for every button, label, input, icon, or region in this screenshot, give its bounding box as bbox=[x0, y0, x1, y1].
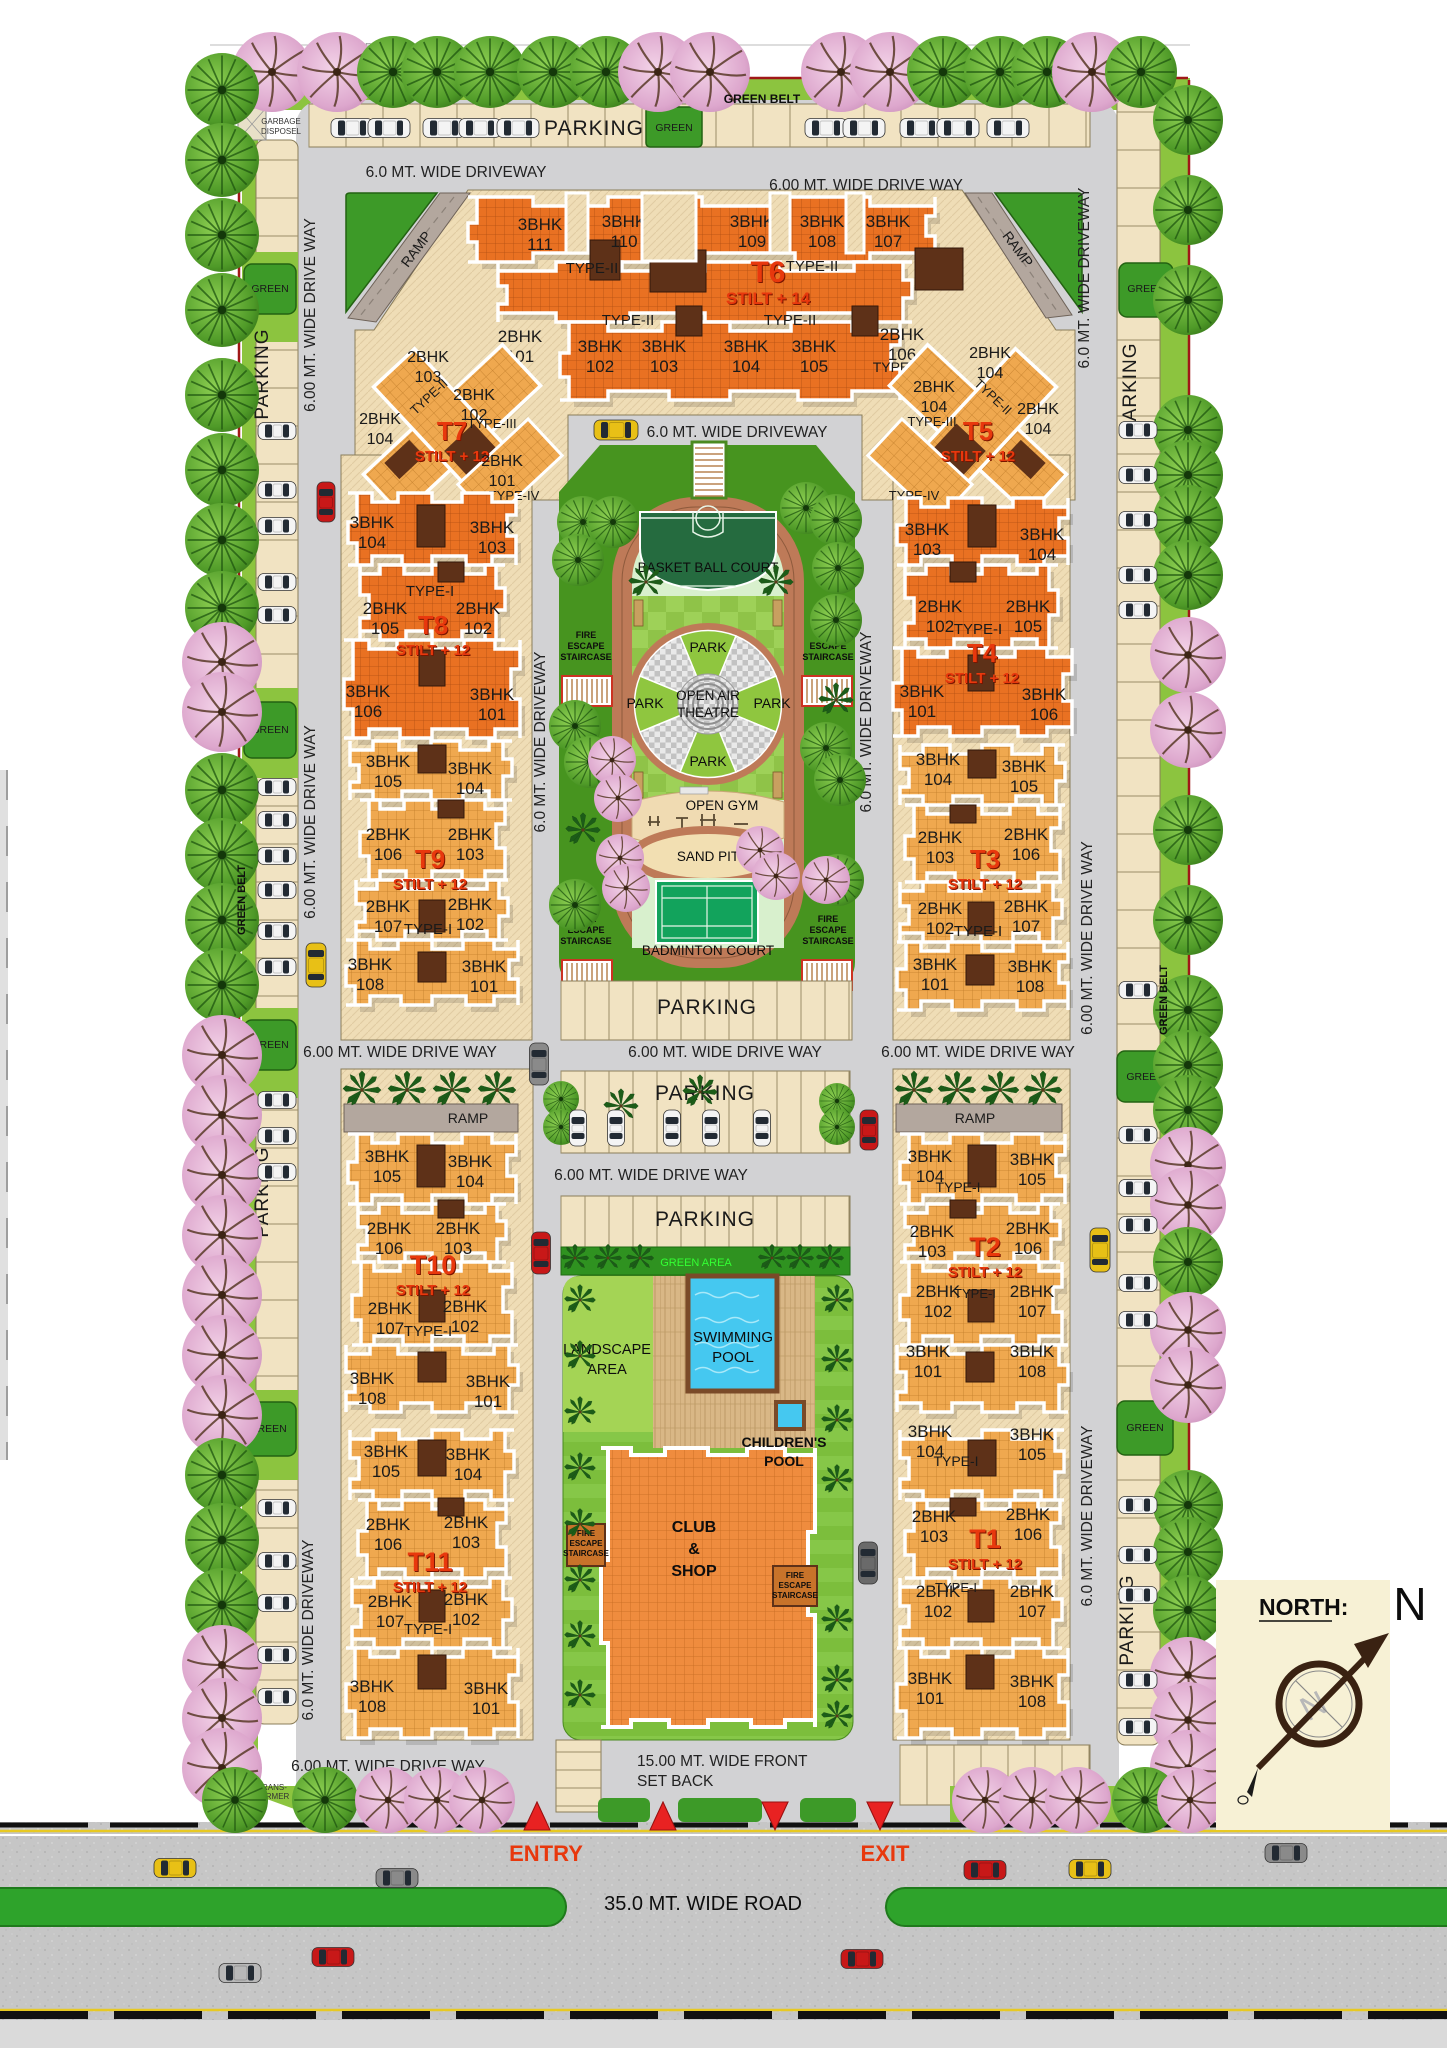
svg-text:104: 104 bbox=[456, 779, 484, 798]
svg-text:6.00 MT. WIDE DRIVE WAY: 6.00 MT. WIDE DRIVE WAY bbox=[302, 725, 319, 919]
svg-text:104: 104 bbox=[358, 533, 386, 552]
svg-text:NORTH:: NORTH: bbox=[1259, 1594, 1348, 1620]
svg-text:STILT + 12: STILT + 12 bbox=[948, 1556, 1022, 1573]
svg-text:T1: T1 bbox=[969, 1524, 1001, 1554]
svg-text:3BHK: 3BHK bbox=[730, 212, 775, 231]
svg-text:GREEN: GREEN bbox=[1126, 1422, 1163, 1434]
svg-text:105: 105 bbox=[372, 1462, 400, 1481]
svg-text:2BHK: 2BHK bbox=[366, 1515, 411, 1534]
svg-text:2BHK: 2BHK bbox=[448, 825, 493, 844]
svg-text:2BHK: 2BHK bbox=[1004, 897, 1049, 916]
svg-text:PARK: PARK bbox=[689, 753, 727, 769]
svg-text:2BHK: 2BHK bbox=[444, 1590, 489, 1609]
svg-text:TYPE-III: TYPE-III bbox=[467, 416, 516, 431]
svg-text:3BHK: 3BHK bbox=[348, 955, 393, 974]
svg-text:&: & bbox=[688, 1541, 700, 1558]
svg-text:3BHK: 3BHK bbox=[346, 682, 391, 701]
svg-text:106: 106 bbox=[1030, 705, 1058, 724]
svg-text:102: 102 bbox=[451, 1317, 479, 1336]
svg-text:STILT + 12: STILT + 12 bbox=[415, 448, 489, 465]
svg-text:2BHK: 2BHK bbox=[918, 828, 963, 847]
svg-text:2BHK: 2BHK bbox=[407, 349, 449, 366]
svg-text:102: 102 bbox=[456, 915, 484, 934]
svg-text:3BHK: 3BHK bbox=[1008, 957, 1053, 976]
svg-text:6.0 MT. WIDE DRIVEWAY: 6.0 MT. WIDE DRIVEWAY bbox=[366, 164, 547, 181]
svg-text:PARKING: PARKING bbox=[657, 996, 757, 1019]
svg-text:104: 104 bbox=[456, 1172, 484, 1191]
svg-text:PARKING: PARKING bbox=[544, 117, 644, 140]
svg-text:104: 104 bbox=[732, 357, 760, 376]
svg-text:TYPE-I: TYPE-I bbox=[954, 923, 1002, 940]
svg-text:102: 102 bbox=[926, 617, 954, 636]
svg-text:103: 103 bbox=[452, 1533, 480, 1552]
svg-text:108: 108 bbox=[808, 232, 836, 251]
svg-text:104: 104 bbox=[924, 770, 952, 789]
svg-text:101: 101 bbox=[478, 705, 506, 724]
svg-text:15.00 MT. WIDE FRONT: 15.00 MT. WIDE FRONT bbox=[637, 1753, 808, 1770]
svg-text:3BHK: 3BHK bbox=[866, 212, 911, 231]
svg-text:101: 101 bbox=[916, 1689, 944, 1708]
svg-text:2BHK: 2BHK bbox=[453, 387, 495, 404]
svg-text:2BHK: 2BHK bbox=[918, 899, 963, 918]
svg-text:102: 102 bbox=[586, 357, 614, 376]
svg-text:T6: T6 bbox=[750, 256, 785, 289]
svg-text:101: 101 bbox=[470, 977, 498, 996]
svg-text:2BHK: 2BHK bbox=[443, 1297, 488, 1316]
svg-text:FIRE: FIRE bbox=[576, 630, 597, 640]
svg-text:105: 105 bbox=[371, 619, 399, 638]
svg-text:3BHK: 3BHK bbox=[916, 750, 961, 769]
svg-text:T11: T11 bbox=[407, 1547, 452, 1577]
svg-text:3BHK: 3BHK bbox=[366, 752, 411, 771]
svg-text:105: 105 bbox=[373, 1167, 401, 1186]
svg-text:T2: T2 bbox=[969, 1232, 1001, 1262]
svg-text:3BHK: 3BHK bbox=[446, 1445, 491, 1464]
svg-text:106: 106 bbox=[374, 845, 402, 864]
svg-text:101: 101 bbox=[914, 1362, 942, 1381]
svg-text:103: 103 bbox=[478, 538, 506, 557]
svg-text:T4: T4 bbox=[967, 638, 998, 668]
svg-text:ESCAPE: ESCAPE bbox=[570, 1539, 604, 1548]
svg-text:3BHK: 3BHK bbox=[1002, 757, 1047, 776]
svg-text:TYPE-III: TYPE-III bbox=[907, 414, 956, 429]
svg-text:102: 102 bbox=[926, 919, 954, 938]
svg-text:3BHK: 3BHK bbox=[905, 520, 950, 539]
svg-text:103: 103 bbox=[926, 848, 954, 867]
svg-text:GARBAGE: GARBAGE bbox=[261, 117, 301, 126]
svg-text:6.00 MT. WIDE DRIVE WAY: 6.00 MT. WIDE DRIVE WAY bbox=[302, 218, 319, 412]
svg-text:SET BACK: SET BACK bbox=[637, 1773, 714, 1790]
svg-text:2BHK: 2BHK bbox=[368, 1299, 413, 1318]
svg-text:6.0 MT. WIDE DRIVEWAY: 6.0 MT. WIDE DRIVEWAY bbox=[1079, 1426, 1096, 1607]
svg-text:CLUB: CLUB bbox=[672, 1519, 716, 1536]
svg-text:2BHK: 2BHK bbox=[444, 1513, 489, 1532]
svg-text:111: 111 bbox=[527, 235, 553, 254]
svg-text:STAIRCASE: STAIRCASE bbox=[802, 652, 853, 662]
svg-text:T10: T10 bbox=[410, 1250, 457, 1280]
svg-text:101: 101 bbox=[908, 702, 936, 721]
svg-text:6.0 MT. WIDE DRIVEWAY: 6.0 MT. WIDE DRIVEWAY bbox=[647, 424, 828, 441]
svg-text:2BHK: 2BHK bbox=[367, 1219, 412, 1238]
svg-text:2BHK: 2BHK bbox=[366, 825, 411, 844]
svg-text:3BHK: 3BHK bbox=[578, 337, 623, 356]
svg-text:3BHK: 3BHK bbox=[642, 337, 687, 356]
svg-text:STAIRCASE: STAIRCASE bbox=[563, 1549, 609, 1558]
svg-text:108: 108 bbox=[1018, 1692, 1046, 1711]
svg-text:3BHK: 3BHK bbox=[602, 212, 647, 231]
svg-text:STILT + 12: STILT + 12 bbox=[945, 670, 1019, 687]
svg-text:T5: T5 bbox=[963, 416, 993, 446]
svg-text:2BHK: 2BHK bbox=[363, 599, 408, 618]
svg-text:108: 108 bbox=[1016, 977, 1044, 996]
svg-text:105: 105 bbox=[800, 357, 828, 376]
svg-text:STILT + 14: STILT + 14 bbox=[726, 289, 811, 308]
svg-text:105: 105 bbox=[1018, 1170, 1046, 1189]
svg-text:106: 106 bbox=[374, 1535, 402, 1554]
svg-text:103: 103 bbox=[913, 540, 941, 559]
svg-text:105: 105 bbox=[1010, 777, 1038, 796]
svg-text:POOL: POOL bbox=[712, 1349, 754, 1366]
svg-text:103: 103 bbox=[918, 1242, 946, 1261]
svg-text:3BHK: 3BHK bbox=[470, 685, 515, 704]
svg-text:6.0 MT. WIDE DRIVEWAY: 6.0 MT. WIDE DRIVEWAY bbox=[532, 652, 549, 833]
svg-text:TYPE-II: TYPE-II bbox=[602, 312, 655, 329]
svg-text:109: 109 bbox=[738, 232, 766, 251]
svg-text:GREEN BELT: GREEN BELT bbox=[236, 865, 248, 935]
svg-text:107: 107 bbox=[874, 232, 902, 251]
svg-text:105: 105 bbox=[1018, 1445, 1046, 1464]
svg-text:STILT + 12: STILT + 12 bbox=[396, 642, 470, 659]
svg-text:FIRE: FIRE bbox=[786, 1571, 805, 1580]
svg-text:101: 101 bbox=[474, 1392, 502, 1411]
svg-text:TYPE-I: TYPE-I bbox=[933, 1453, 978, 1469]
svg-text:2BHK: 2BHK bbox=[918, 597, 963, 616]
svg-text:3BHK: 3BHK bbox=[350, 1369, 395, 1388]
svg-text:PARKING: PARKING bbox=[655, 1208, 755, 1231]
svg-text:3BHK: 3BHK bbox=[913, 955, 958, 974]
svg-text:104: 104 bbox=[1028, 545, 1056, 564]
svg-text:GREEN BELT: GREEN BELT bbox=[1158, 965, 1170, 1035]
svg-text:TYPE-I: TYPE-I bbox=[406, 583, 454, 600]
svg-text:DISPOSEL: DISPOSEL bbox=[261, 127, 302, 136]
svg-text:THEATRE: THEATRE bbox=[677, 705, 739, 720]
svg-text:3BHK: 3BHK bbox=[518, 215, 563, 234]
svg-text:FIRE: FIRE bbox=[818, 914, 839, 924]
svg-text:105: 105 bbox=[1014, 617, 1042, 636]
svg-text:3BHK: 3BHK bbox=[800, 212, 845, 231]
svg-text:3BHK: 3BHK bbox=[908, 1147, 953, 1166]
svg-text:PARKING: PARKING bbox=[1120, 342, 1141, 433]
svg-text:3BHK: 3BHK bbox=[448, 759, 493, 778]
svg-text:GREEN BELT: GREEN BELT bbox=[724, 92, 801, 106]
svg-text:102: 102 bbox=[924, 1302, 952, 1321]
svg-text:3BHK: 3BHK bbox=[350, 1677, 395, 1696]
svg-text:104: 104 bbox=[1025, 421, 1052, 438]
svg-text:STILT + 12: STILT + 12 bbox=[393, 876, 467, 893]
svg-text:2BHK: 2BHK bbox=[436, 1219, 481, 1238]
svg-text:TYPE-I: TYPE-I bbox=[404, 1621, 452, 1638]
svg-text:STAIRCASE: STAIRCASE bbox=[772, 1591, 818, 1600]
svg-text:103: 103 bbox=[920, 1527, 948, 1546]
svg-text:3BHK: 3BHK bbox=[1020, 525, 1065, 544]
svg-text:3BHK: 3BHK bbox=[1022, 685, 1067, 704]
svg-text:RAMP: RAMP bbox=[448, 1110, 488, 1126]
svg-text:2BHK: 2BHK bbox=[1006, 1505, 1051, 1524]
svg-text:AREA: AREA bbox=[587, 1362, 627, 1378]
svg-text:2BHK: 2BHK bbox=[456, 599, 501, 618]
svg-text:3BHK: 3BHK bbox=[466, 1372, 511, 1391]
svg-text:TYPE-I: TYPE-I bbox=[404, 1323, 452, 1340]
svg-text:102: 102 bbox=[924, 1602, 952, 1621]
svg-text:103: 103 bbox=[456, 845, 484, 864]
svg-text:6.0 MT. WIDE DRIVEWAY: 6.0 MT. WIDE DRIVEWAY bbox=[1076, 188, 1093, 369]
svg-text:ENTRY: ENTRY bbox=[509, 1841, 583, 1866]
svg-text:STILT + 12: STILT + 12 bbox=[948, 876, 1022, 893]
svg-text:PARK: PARK bbox=[626, 695, 664, 711]
svg-text:ESCAPE: ESCAPE bbox=[567, 641, 604, 651]
svg-text:108: 108 bbox=[1018, 1362, 1046, 1381]
svg-text:3BHK: 3BHK bbox=[724, 337, 769, 356]
svg-text:6.00 MT. WIDE DRIVE WAY: 6.00 MT. WIDE DRIVE WAY bbox=[769, 177, 963, 194]
svg-text:2BHK: 2BHK bbox=[368, 1592, 413, 1611]
svg-text:2BHK: 2BHK bbox=[498, 327, 543, 346]
svg-text:6.00 MT. WIDE DRIVE WAY: 6.00 MT. WIDE DRIVE WAY bbox=[1079, 841, 1096, 1035]
svg-text:2BHK: 2BHK bbox=[1017, 401, 1059, 418]
svg-text:TYPE-I: TYPE-I bbox=[935, 1179, 980, 1195]
svg-text:T3: T3 bbox=[970, 844, 1000, 874]
svg-text:STILT + 12: STILT + 12 bbox=[948, 1264, 1022, 1281]
svg-text:2BHK: 2BHK bbox=[880, 325, 925, 344]
svg-text:2BHK: 2BHK bbox=[366, 897, 411, 916]
svg-text:6.00 MT. WIDE DRIVE WAY: 6.00 MT. WIDE DRIVE WAY bbox=[881, 1044, 1075, 1061]
svg-text:STAIRCASE: STAIRCASE bbox=[560, 652, 611, 662]
svg-text:3BHK: 3BHK bbox=[1010, 1672, 1055, 1691]
svg-text:2BHK: 2BHK bbox=[1010, 1582, 1055, 1601]
svg-text:2BHK: 2BHK bbox=[448, 895, 493, 914]
svg-text:3BHK: 3BHK bbox=[1010, 1425, 1055, 1444]
svg-text:BADMINTON COURT: BADMINTON COURT bbox=[642, 943, 774, 958]
svg-text:N: N bbox=[1393, 1578, 1426, 1630]
svg-text:2BHK: 2BHK bbox=[1004, 825, 1049, 844]
svg-text:35.0 MT. WIDE ROAD: 35.0 MT. WIDE ROAD bbox=[604, 1893, 802, 1915]
svg-text:108: 108 bbox=[356, 975, 384, 994]
svg-text:3BHK: 3BHK bbox=[1010, 1342, 1055, 1361]
svg-text:TYPE-II: TYPE-II bbox=[786, 258, 839, 275]
svg-text:OPEN GYM: OPEN GYM bbox=[686, 798, 759, 813]
svg-text:107: 107 bbox=[1018, 1302, 1046, 1321]
svg-text:105: 105 bbox=[374, 772, 402, 791]
svg-text:TYPE-I: TYPE-I bbox=[954, 621, 1002, 638]
svg-text:2BHK: 2BHK bbox=[1010, 1282, 1055, 1301]
svg-text:6.00 MT. WIDE DRIVE WAY: 6.00 MT. WIDE DRIVE WAY bbox=[628, 1044, 822, 1061]
svg-text:SAND PIT: SAND PIT bbox=[677, 849, 739, 864]
svg-text:106: 106 bbox=[354, 702, 382, 721]
svg-text:3BHK: 3BHK bbox=[908, 1422, 953, 1441]
svg-text:107: 107 bbox=[1012, 917, 1040, 936]
svg-text:3BHK: 3BHK bbox=[470, 518, 515, 537]
svg-text:101: 101 bbox=[921, 975, 949, 994]
svg-text:TYPE-II: TYPE-II bbox=[764, 312, 817, 329]
svg-text:BASKET BALL COURT: BASKET BALL COURT bbox=[638, 560, 779, 575]
svg-text:STAIRCASE: STAIRCASE bbox=[802, 936, 853, 946]
svg-text:GREEN AREA: GREEN AREA bbox=[660, 1257, 732, 1269]
svg-text:T9: T9 bbox=[415, 844, 445, 874]
svg-text:6.00 MT. WIDE DRIVE WAY: 6.00 MT. WIDE DRIVE WAY bbox=[554, 1167, 748, 1184]
svg-text:POOL: POOL bbox=[764, 1453, 804, 1469]
svg-text:3BHK: 3BHK bbox=[1010, 1150, 1055, 1169]
svg-text:2BHK: 2BHK bbox=[1006, 1219, 1051, 1238]
svg-text:3BHK: 3BHK bbox=[464, 1679, 509, 1698]
svg-text:CHILDREN'S: CHILDREN'S bbox=[742, 1434, 827, 1450]
svg-text:108: 108 bbox=[358, 1697, 386, 1716]
svg-text:106: 106 bbox=[1012, 845, 1040, 864]
svg-text:6.00 MT. WIDE DRIVE WAY: 6.00 MT. WIDE DRIVE WAY bbox=[303, 1044, 497, 1061]
svg-text:2BHK: 2BHK bbox=[969, 345, 1011, 362]
svg-text:107: 107 bbox=[374, 917, 402, 936]
svg-text:3BHK: 3BHK bbox=[792, 337, 837, 356]
svg-text:TYPE-II: TYPE-II bbox=[566, 260, 619, 277]
svg-text:OPEN AIR: OPEN AIR bbox=[676, 688, 740, 703]
svg-text:GREEN: GREEN bbox=[655, 122, 692, 134]
svg-text:104: 104 bbox=[454, 1465, 482, 1484]
svg-text:2BHK: 2BHK bbox=[1006, 597, 1051, 616]
svg-text:3BHK: 3BHK bbox=[350, 513, 395, 532]
svg-text:SHOP: SHOP bbox=[671, 1563, 717, 1580]
svg-text:102: 102 bbox=[452, 1610, 480, 1629]
svg-text:106: 106 bbox=[375, 1239, 403, 1258]
svg-text:3BHK: 3BHK bbox=[908, 1669, 953, 1688]
svg-text:3BHK: 3BHK bbox=[462, 957, 507, 976]
svg-text:PARK: PARK bbox=[689, 639, 727, 655]
svg-text:3BHK: 3BHK bbox=[906, 1342, 951, 1361]
svg-text:3BHK: 3BHK bbox=[448, 1152, 493, 1171]
svg-text:108: 108 bbox=[358, 1389, 386, 1408]
svg-text:3BHK: 3BHK bbox=[365, 1147, 410, 1166]
svg-text:GREEN: GREEN bbox=[251, 283, 288, 295]
svg-text:3BHK: 3BHK bbox=[364, 1442, 409, 1461]
svg-text:101: 101 bbox=[472, 1699, 500, 1718]
svg-text:STILT + 12: STILT + 12 bbox=[941, 448, 1015, 465]
svg-text:2BHK: 2BHK bbox=[912, 1507, 957, 1526]
svg-text:PARK: PARK bbox=[753, 695, 791, 711]
svg-text:ESCAPE: ESCAPE bbox=[809, 925, 846, 935]
svg-text:T8: T8 bbox=[418, 610, 448, 640]
svg-text:2BHK: 2BHK bbox=[913, 379, 955, 396]
svg-text:ESCAPE: ESCAPE bbox=[779, 1581, 813, 1590]
svg-text:3BHK: 3BHK bbox=[900, 682, 945, 701]
svg-text:STAIRCASE: STAIRCASE bbox=[560, 936, 611, 946]
svg-text:107: 107 bbox=[1018, 1602, 1046, 1621]
svg-text:107: 107 bbox=[376, 1612, 404, 1631]
svg-text:107: 107 bbox=[376, 1319, 404, 1338]
svg-text:103: 103 bbox=[650, 357, 678, 376]
svg-text:TYPE-I: TYPE-I bbox=[954, 1286, 996, 1301]
svg-text:6.0 MT. WIDE DRIVEWAY: 6.0 MT. WIDE DRIVEWAY bbox=[300, 1540, 317, 1721]
svg-text:TYPE-I: TYPE-I bbox=[935, 1580, 977, 1595]
svg-text:T7: T7 bbox=[437, 416, 467, 446]
svg-text:2BHK: 2BHK bbox=[910, 1222, 955, 1241]
svg-text:RAMP: RAMP bbox=[955, 1110, 995, 1126]
svg-text:2BHK: 2BHK bbox=[481, 453, 523, 470]
svg-text:102: 102 bbox=[464, 619, 492, 638]
svg-text:2BHK: 2BHK bbox=[359, 411, 401, 428]
svg-text:106: 106 bbox=[1014, 1239, 1042, 1258]
svg-text:SWIMMING: SWIMMING bbox=[693, 1329, 773, 1346]
svg-text:TYPE-I: TYPE-I bbox=[404, 921, 452, 938]
svg-text:104: 104 bbox=[367, 431, 394, 448]
svg-text:110: 110 bbox=[610, 232, 637, 251]
svg-text:EXIT: EXIT bbox=[861, 1841, 910, 1866]
svg-text:106: 106 bbox=[1014, 1525, 1042, 1544]
